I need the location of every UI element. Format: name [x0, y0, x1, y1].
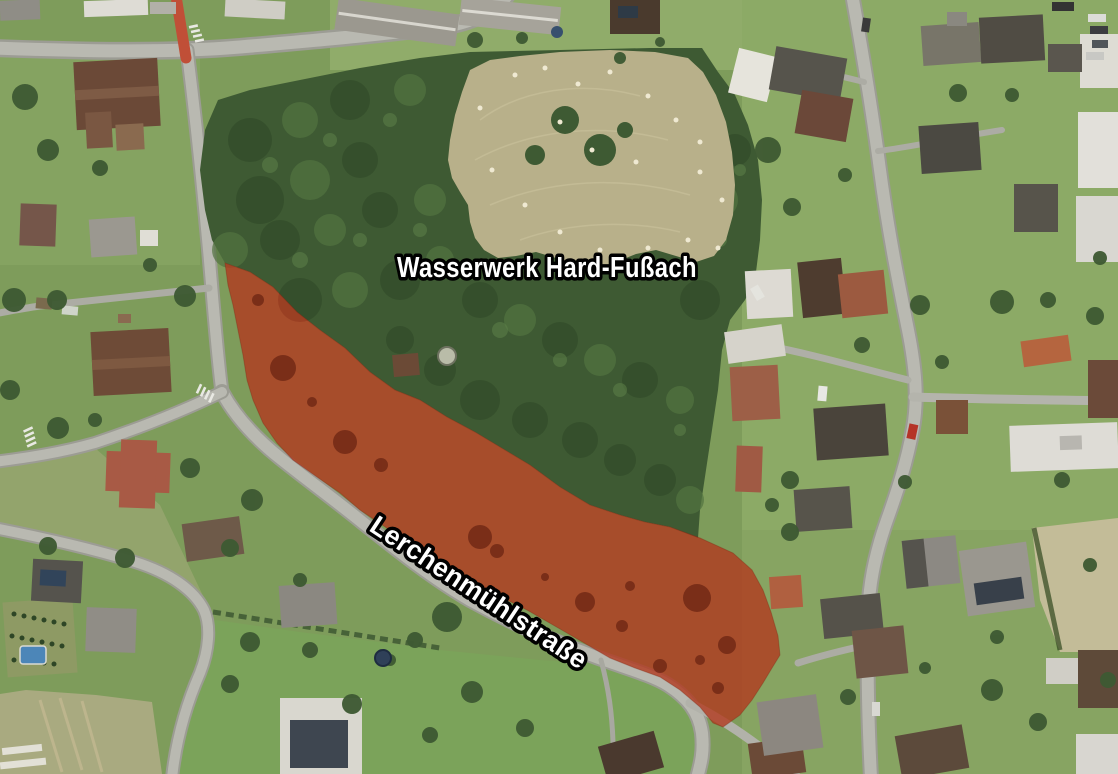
site-label: Wasserwerk Hard-Fußach [397, 252, 697, 284]
aerial-map-canvas: Wasserwerk Hard-Fußach Lerchenmühlstraße [0, 0, 1118, 774]
aerial-map-image: Wasserwerk Hard-Fußach Lerchenmühlstraße [0, 0, 1118, 774]
hay-field [448, 50, 735, 270]
swimming-pool [20, 646, 46, 664]
trampoline [375, 650, 391, 666]
forest-hut [392, 353, 420, 377]
garden-pool [551, 26, 563, 38]
round-pond [438, 347, 456, 365]
